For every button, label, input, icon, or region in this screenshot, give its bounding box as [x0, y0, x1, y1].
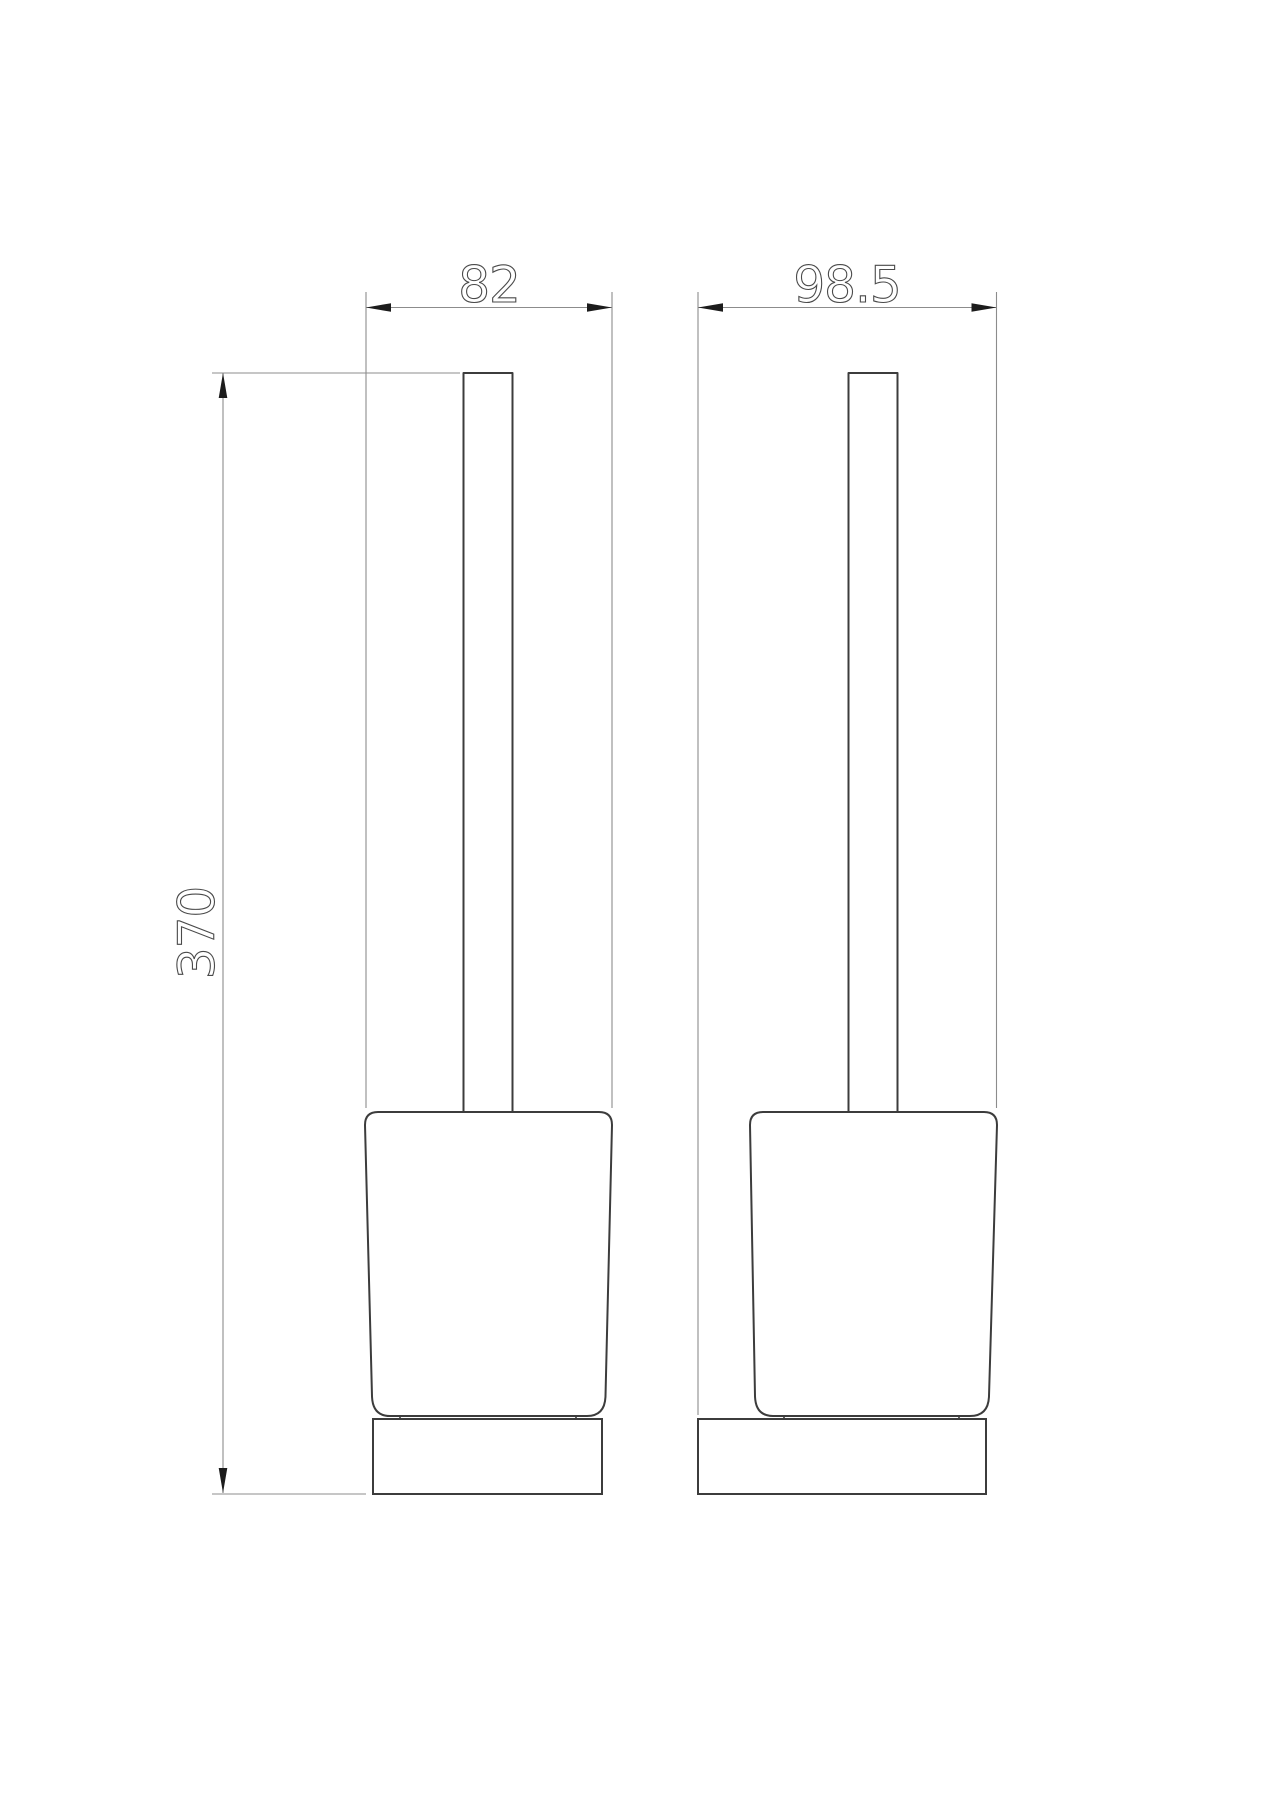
side-view-base-plate [698, 1419, 986, 1494]
side-view-brush-handle [849, 373, 898, 1112]
front-view [365, 373, 612, 1494]
height-dimension-label: 370 [168, 887, 226, 979]
depth-arrow-right [972, 303, 997, 312]
dimension-width: 82 [366, 256, 612, 1108]
dimension-depth: 98.5 [698, 256, 997, 1415]
front-view-brush-handle [464, 373, 513, 1112]
technical-drawing-canvas: 82 98.5 370 [0, 0, 1273, 1800]
depth-arrow-left [698, 303, 723, 312]
width-arrow-right [587, 303, 612, 312]
height-arrow-bottom [219, 1468, 228, 1493]
side-view [698, 373, 997, 1494]
height-arrow-top [219, 373, 228, 398]
side-view-cup [750, 1112, 997, 1416]
depth-dimension-label: 98.5 [793, 256, 900, 314]
front-view-cup [365, 1112, 612, 1416]
front-view-base-plate [373, 1419, 602, 1494]
dimension-height: 370 [168, 373, 460, 1494]
width-dimension-label: 82 [458, 256, 520, 314]
width-arrow-left [366, 303, 391, 312]
